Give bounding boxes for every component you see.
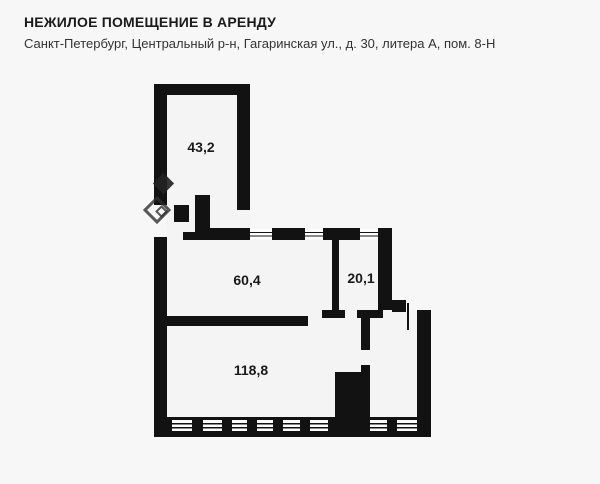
wall-segment [195, 228, 250, 240]
room-area-label: 20,1 [347, 270, 374, 286]
window [283, 420, 300, 431]
wall-segment [237, 84, 250, 210]
window [172, 420, 192, 431]
door-jamb [392, 300, 406, 312]
window [250, 229, 272, 239]
window [310, 420, 328, 431]
wall-segment [357, 310, 383, 318]
wall-stub [361, 365, 370, 372]
window [305, 229, 323, 239]
wall-segment [272, 228, 305, 240]
wall-stub [361, 318, 370, 350]
room-area-label: 43,2 [187, 139, 214, 155]
room-area-label: 60,4 [233, 272, 260, 288]
room-floor [167, 326, 417, 417]
page-title: НЕЖИЛОЕ ПОМЕЩЕНИЕ В АРЕНДУ [24, 14, 276, 30]
door-leaf [407, 303, 409, 330]
window [257, 420, 273, 431]
wall-segment [154, 84, 250, 95]
window [397, 420, 417, 431]
floor-plan-screenshot: НЕЖИЛОЕ ПОМЕЩЕНИЕ В АРЕНДУ Санкт-Петербу… [0, 0, 600, 484]
shaft-block [335, 372, 370, 418]
room-area-label: 118,8 [234, 362, 268, 378]
window [370, 420, 387, 431]
wall-segment [322, 310, 345, 318]
wall-segment [154, 237, 167, 437]
wall-segment [195, 195, 210, 228]
window [360, 229, 378, 239]
wall-pillar [174, 205, 189, 222]
wall-segment [167, 316, 308, 326]
wall-stub [183, 232, 198, 240]
window [232, 420, 247, 431]
window [203, 420, 222, 431]
room-floor [167, 240, 378, 316]
wall-segment [378, 228, 392, 310]
door-gap [308, 316, 323, 326]
wall-segment [323, 228, 360, 240]
wall-partition [332, 240, 339, 310]
address-subtitle: Санкт-Петербург, Центральный р-н, Гагари… [24, 36, 495, 51]
